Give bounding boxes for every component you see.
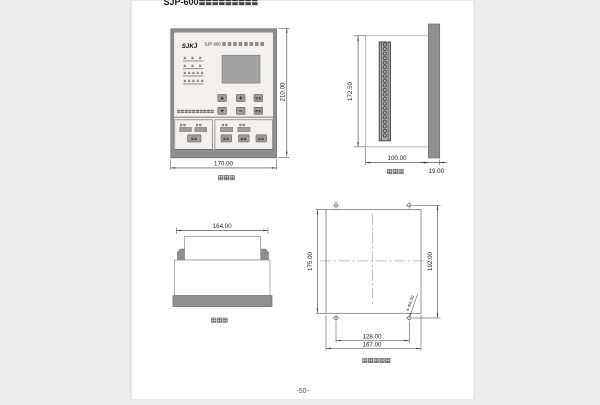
svg-text:170.00: 170.00 (214, 160, 233, 167)
svg-text:210.00: 210.00 (280, 82, 287, 101)
svg-text:167.00: 167.00 (363, 341, 382, 348)
svg-text:19.00: 19.00 (429, 168, 445, 175)
svg-text:192.00: 192.00 (427, 251, 434, 270)
svg-text:SJP-600: SJP-600 (205, 42, 222, 47)
svg-text:172.50: 172.50 (347, 81, 354, 100)
svg-text:175.00: 175.00 (307, 251, 314, 270)
svg-text:SJP-600: SJP-600 (164, 0, 199, 7)
svg-text:100.00: 100.00 (388, 155, 407, 162)
svg-text:128.00: 128.00 (363, 333, 382, 340)
svg-text:164.00: 164.00 (213, 223, 232, 230)
svg-text:-50-: -50- (296, 388, 309, 395)
